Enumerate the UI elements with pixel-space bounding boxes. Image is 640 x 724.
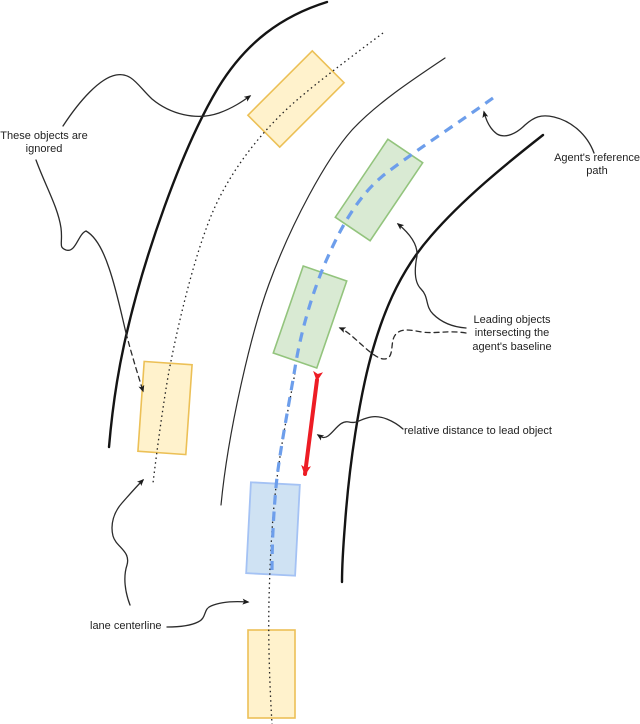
leader-reference-path — [484, 112, 594, 153]
vehicle-leading-near — [273, 266, 346, 368]
vehicle-ignored-bottom — [248, 630, 295, 718]
leader-ignored-to-mid-vehicle — [36, 160, 126, 333]
leader-relative-distance — [318, 417, 403, 438]
label-ignored-objects: These objects are ignored — [0, 130, 88, 157]
leader-centerline-up — [112, 480, 143, 605]
vehicle-ignored-top — [248, 51, 344, 147]
vehicle-ignored-mid — [138, 361, 192, 454]
leader-leading-to-near-vehicle — [340, 328, 466, 359]
leader-centerline-right — [167, 602, 248, 627]
label-agent-reference-path: Agent's reference path — [551, 152, 640, 179]
label-relative-distance: relative distance to lead object — [404, 425, 552, 438]
label-lane-centerline: lane centerline — [90, 620, 162, 633]
leader-leading-to-far-vehicle — [398, 224, 466, 328]
diagram-canvas: These objects are ignored Agent's refere… — [0, 0, 640, 724]
road-diagram — [0, 0, 640, 724]
distance-arrow — [305, 380, 317, 474]
label-leading-objects: Leading objects intersecting the agent's… — [464, 314, 560, 354]
leader-ignored-to-mid-vehicle-tail — [126, 333, 143, 391]
